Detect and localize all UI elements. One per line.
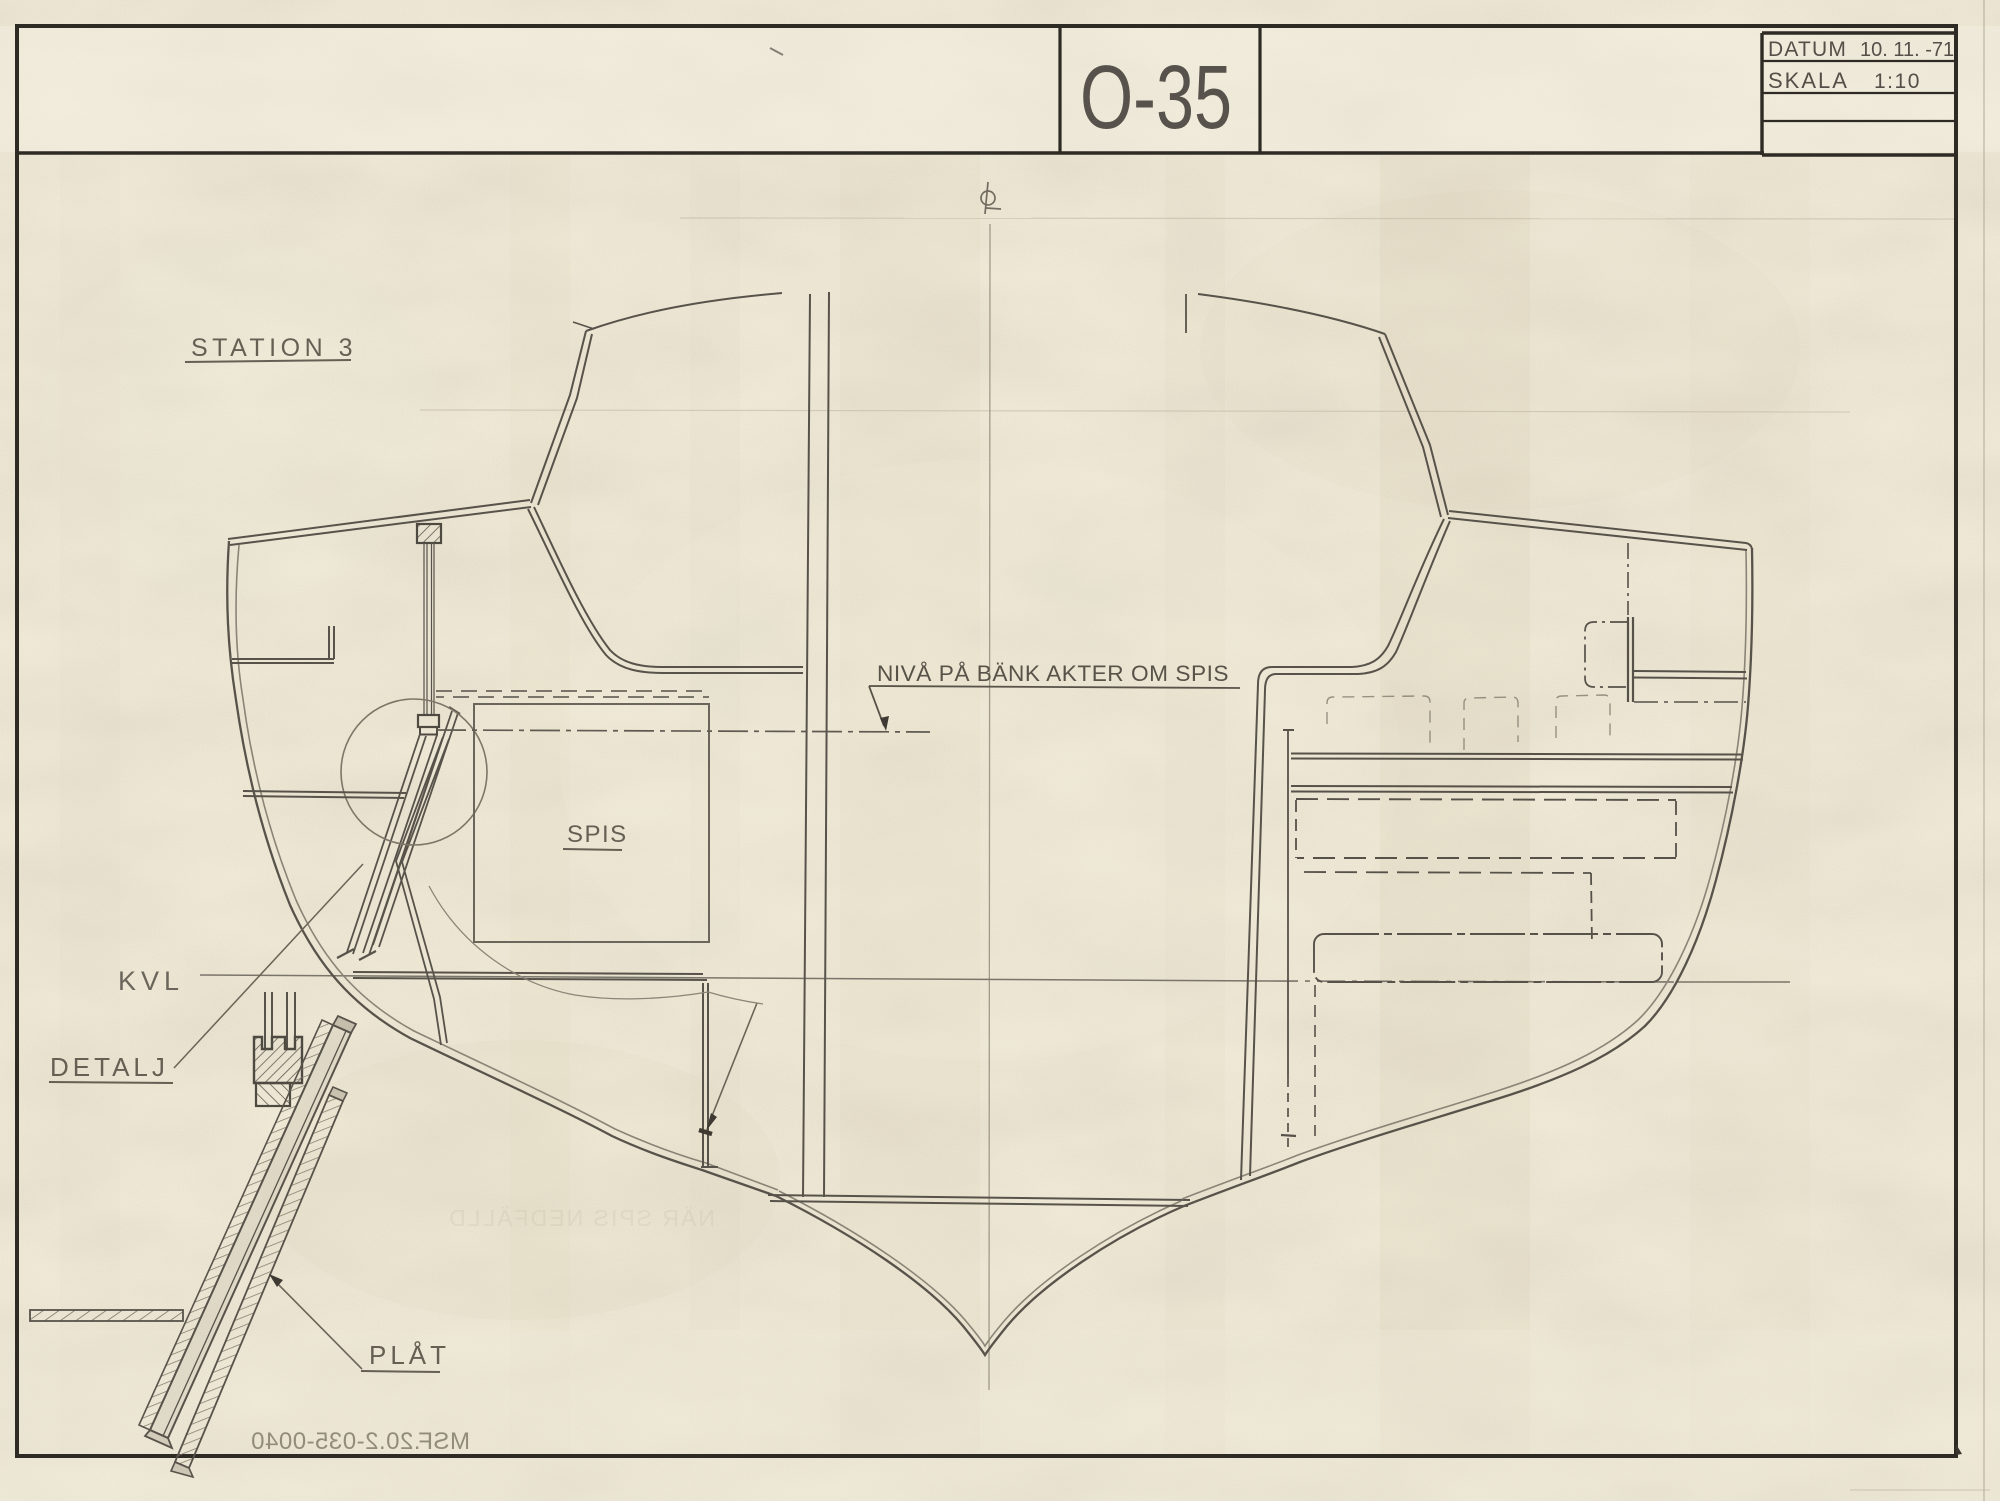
- svg-text:SPIS: SPIS: [567, 821, 628, 848]
- svg-text:NIVÅ PÅ BÄNK AKTER OM SPIS: NIVÅ PÅ BÄNK AKTER OM SPIS: [877, 661, 1229, 686]
- svg-text:O-35: O-35: [1080, 48, 1232, 148]
- svg-text:SKALA: SKALA: [1768, 68, 1849, 93]
- svg-text:DETALJ: DETALJ: [50, 1052, 169, 1082]
- svg-text:MSF.20.2-035-0040: MSF.20.2-035-0040: [251, 1428, 470, 1455]
- svg-text:KVL: KVL: [118, 966, 184, 996]
- svg-text:1:10: 1:10: [1874, 70, 1921, 93]
- svg-text:NÄR SPIS NEDFÄLLD: NÄR SPIS NEDFÄLLD: [447, 1205, 715, 1231]
- svg-text:DATUM: DATUM: [1768, 38, 1847, 61]
- svg-text:PLÅT: PLÅT: [369, 1340, 450, 1370]
- svg-text:STATION 3: STATION 3: [191, 334, 357, 362]
- svg-text:10. 11. -71: 10. 11. -71: [1860, 39, 1954, 61]
